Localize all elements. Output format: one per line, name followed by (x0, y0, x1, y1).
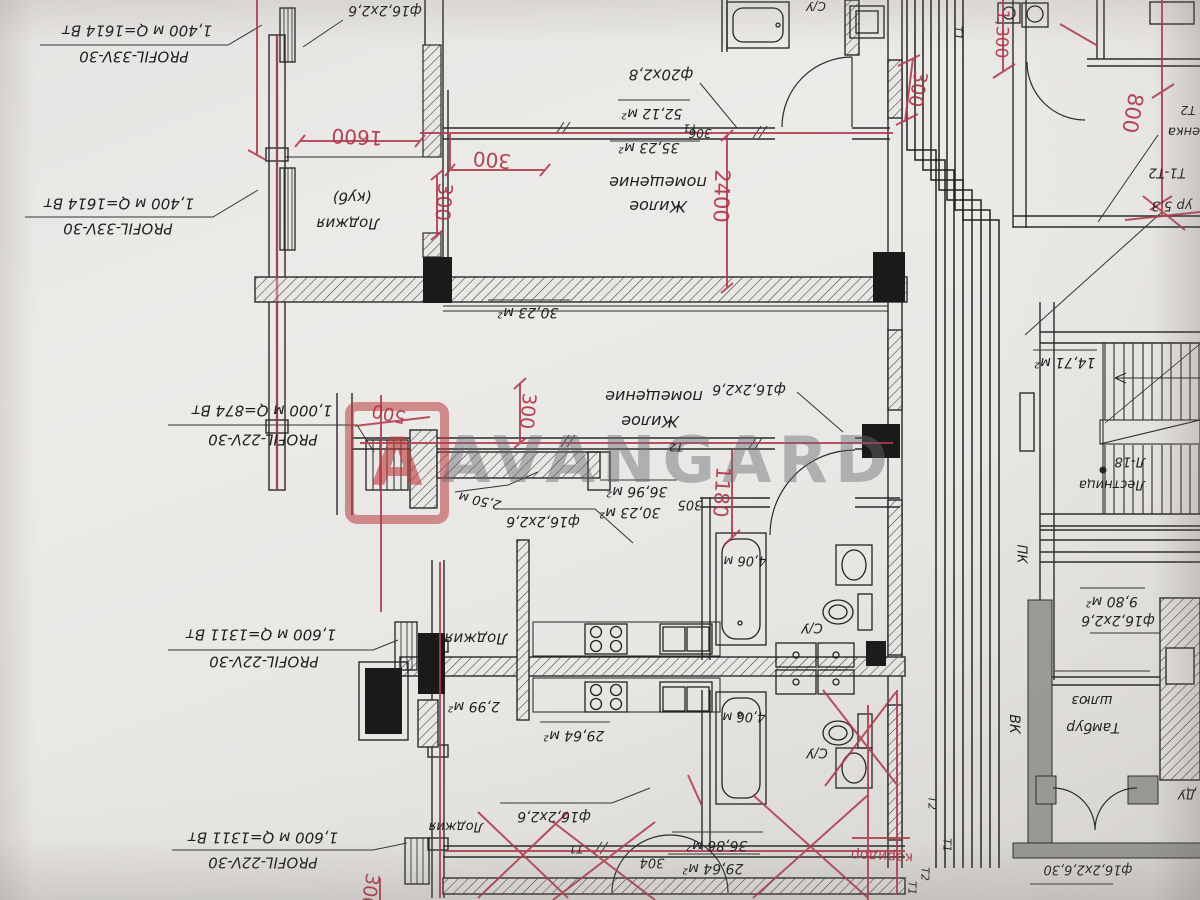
apartment-number: 305 (678, 498, 703, 511)
pipe-spec-label: ф16,2х2,6 (348, 3, 422, 17)
red-dimension: 300 (516, 392, 538, 430)
area-label: 14,71 м² (1035, 355, 1096, 369)
pipe-spec-label: ф16,2х2,6 (1081, 613, 1155, 627)
pipe-tag: Т1 (683, 123, 697, 134)
room-label: Лестница (1079, 478, 1145, 491)
red-dimension: 300 (432, 182, 455, 222)
pipe-tag: Т1-Т2 (1148, 166, 1185, 179)
apartment-number: 304 (640, 856, 665, 869)
area-label: 29,64 м² (544, 728, 605, 742)
red-dimension: 500 (370, 401, 407, 426)
room-label: шлюз (1072, 693, 1113, 707)
room-label: С/У (806, 0, 826, 12)
radiator-spec-label: 1,000 м Q=874 Вт (192, 403, 333, 418)
red-dimension: 1600 (331, 126, 383, 149)
area-label: 35,23 м² (619, 140, 680, 154)
red-dimension: 300 (904, 69, 929, 108)
pipe-tag: Т2 (920, 867, 931, 881)
length-label: 2,50 м (458, 489, 503, 511)
room-label: Жилое (629, 198, 687, 214)
red-dimension: 2400 (710, 169, 733, 223)
pipe-tag: Т1 (953, 26, 964, 40)
red-dimension: 800 (1118, 91, 1146, 134)
pipe-tag: Т2 (669, 442, 683, 453)
radiator-spec-label: PROFIL-22V-30 (208, 855, 317, 870)
room-label: ПК (1015, 544, 1028, 563)
radiator-spec-label: 1,400 м Q=1614 Вт (62, 23, 212, 38)
area-label: 30,23 м² (498, 305, 559, 319)
area-label: 36,96 м² (607, 484, 668, 498)
room-label: С/У (806, 746, 827, 759)
pipe-spec-label: ф16,2х2,6 (506, 514, 580, 528)
room-label: ВК (1007, 714, 1021, 734)
room-label: Л-18 (1114, 455, 1145, 468)
radiator-spec-label: PROFIL-33V-30 (63, 221, 172, 236)
red-dimension: 1,300 (992, 9, 1011, 58)
room-label: помещение (609, 174, 707, 190)
radiator-spec-label: PROFIL-22V-30 (208, 432, 317, 447)
room-label: Лоджия (444, 631, 507, 646)
radiator-spec-label: PROFIL-22V-30 (209, 654, 318, 669)
room-label: Жилое (621, 413, 679, 429)
note-label: ур 5.3 (1152, 199, 1193, 212)
length-label: 4,06 м (723, 710, 766, 723)
pipe-spec-label: ф16,2х2,6 (517, 809, 591, 823)
area-label: 2,99 м² (448, 699, 500, 713)
room-label: Лоджия (429, 820, 484, 833)
note-label: енка (1168, 125, 1200, 138)
room-label: ДУ (1178, 787, 1196, 800)
red-dimension: 1180 (710, 466, 734, 518)
area-label: 52,12 м² (622, 106, 683, 120)
area-label: 36,86 м² (687, 838, 748, 852)
radiator-spec-label: 1,600 м Q=1311 Вт (186, 627, 336, 642)
floor-plan-photo: A AVANGARD 1,400 м Q=1614 ВтPROFIL-33V-3… (0, 0, 1200, 900)
room-label: (куб) (333, 190, 372, 205)
room-label: Лоджия (316, 216, 379, 231)
red-dimension: 300 (356, 871, 381, 900)
plan-labels-layer: 1,400 м Q=1614 ВтPROFIL-33V-301,400 м Q=… (0, 0, 1200, 900)
room-label: помещение (605, 388, 703, 404)
length-label: 4,06 м (724, 554, 767, 567)
red-note: коридор (851, 847, 914, 864)
pipe-spec-label: ф16,2х2,6 (712, 382, 786, 396)
pipe-tag: Т2 (927, 796, 938, 810)
pipe-spec-label: ф20х2,8 (629, 67, 694, 82)
pipe-tag: Т2 (1181, 104, 1196, 116)
room-label: Тамбур (1066, 720, 1120, 734)
radiator-spec-label: 1,400 м Q=1614 Вт (44, 196, 194, 211)
area-label: 30,23 м² (600, 505, 661, 519)
area-label: 29,64 м² (683, 861, 744, 875)
red-dimension: 300 (472, 148, 512, 171)
radiator-spec-label: 1,600 м Q=1311 Вт (188, 830, 338, 845)
pipe-tag: Т1 (907, 881, 918, 895)
room-label: С/У (801, 621, 822, 634)
radiator-spec-label: PROFIL-33V-30 (79, 49, 188, 64)
pipe-tag: Т1 (942, 838, 953, 852)
pipe-spec-label: ф16,2х2,6,30 (1043, 863, 1132, 876)
pipe-tag: Т1 (569, 844, 583, 855)
area-label: 9,80 м² (1086, 594, 1138, 608)
